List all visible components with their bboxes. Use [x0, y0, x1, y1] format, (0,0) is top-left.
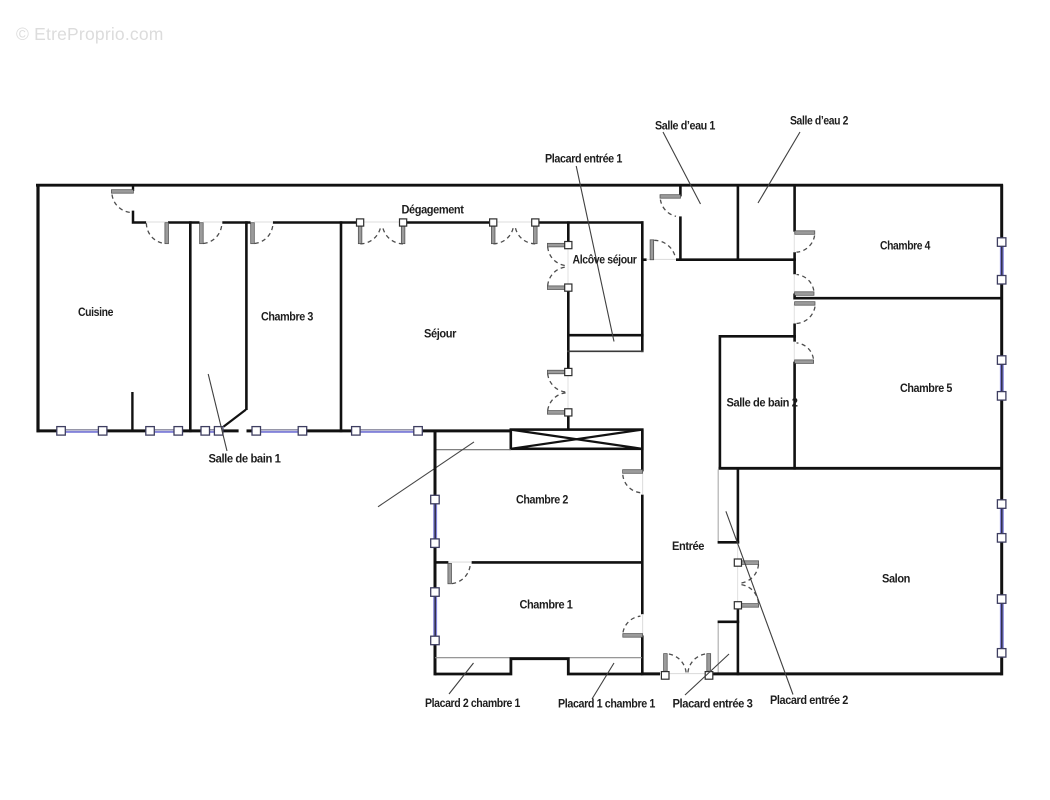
svg-text:Chambre 4: Chambre 4 [880, 239, 931, 253]
svg-text:Placard entrée 3: Placard entrée 3 [673, 697, 754, 711]
svg-text:Salle d’eau 2: Salle d’eau 2 [790, 114, 849, 128]
svg-text:Salle d’eau 1: Salle d’eau 1 [655, 119, 716, 133]
svg-text:Chambre 1: Chambre 1 [520, 598, 574, 612]
svg-text:Cuisine: Cuisine [78, 305, 114, 319]
svg-text:Dégagement: Dégagement [402, 203, 464, 217]
svg-text:Placard entrée 2: Placard entrée 2 [770, 693, 849, 707]
svg-text:Placard 1 chambre 1: Placard 1 chambre 1 [558, 697, 656, 711]
svg-text:Alcôve séjour: Alcôve séjour [573, 253, 638, 267]
svg-text:Chambre 2: Chambre 2 [516, 493, 569, 507]
svg-text:Placard entrée 1: Placard entrée 1 [545, 152, 623, 166]
svg-text:Salle de bain 2: Salle de bain 2 [727, 396, 799, 410]
svg-text:Entrée: Entrée [672, 539, 705, 553]
svg-text:Salle de bain 1: Salle de bain 1 [209, 452, 282, 466]
svg-text:Chambre 5: Chambre 5 [900, 381, 953, 395]
svg-text:Séjour: Séjour [424, 327, 457, 341]
svg-text:Salon: Salon [882, 572, 910, 586]
svg-text:Chambre 3: Chambre 3 [261, 310, 314, 324]
svg-text:Placard 2 chambre 1: Placard 2 chambre 1 [425, 696, 521, 710]
svg-text:© EtreProprio.com: © EtreProprio.com [16, 24, 164, 44]
